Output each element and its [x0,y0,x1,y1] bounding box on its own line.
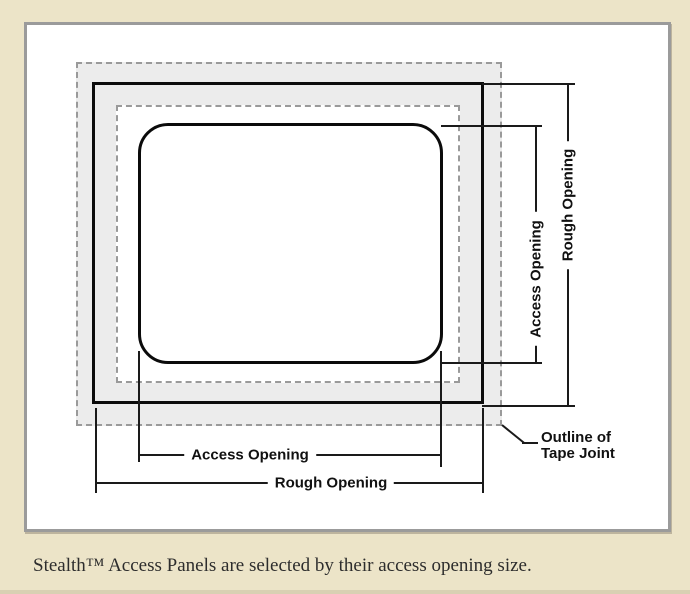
access-v-bottom-extension-line [441,362,542,364]
access-v-top-extension-line [441,125,542,127]
rough-h-right-extension-line [482,408,484,493]
rough-v-bottom-extension-line [482,405,575,407]
rough-v-top-extension-line [482,83,575,85]
access-panel-door [138,123,443,364]
access-opening-bottom-label: Access Opening [184,447,316,464]
rough-opening-vertical-label: Rough Opening [560,141,577,269]
tape-joint-label: Outline of Tape Joint [541,430,615,462]
caption-text: Stealth™ Access Panels are selected by t… [33,553,663,579]
tape-joint-leader-horizontal [522,442,538,444]
rough-h-left-extension-line [95,408,97,493]
access-h-left-extension-line [138,351,140,462]
page-bottom-edge [0,590,690,594]
access-opening-vertical-label: Access Opening [528,212,545,346]
access-h-right-extension-line [440,351,442,467]
rough-opening-bottom-label: Rough Opening [268,475,394,492]
